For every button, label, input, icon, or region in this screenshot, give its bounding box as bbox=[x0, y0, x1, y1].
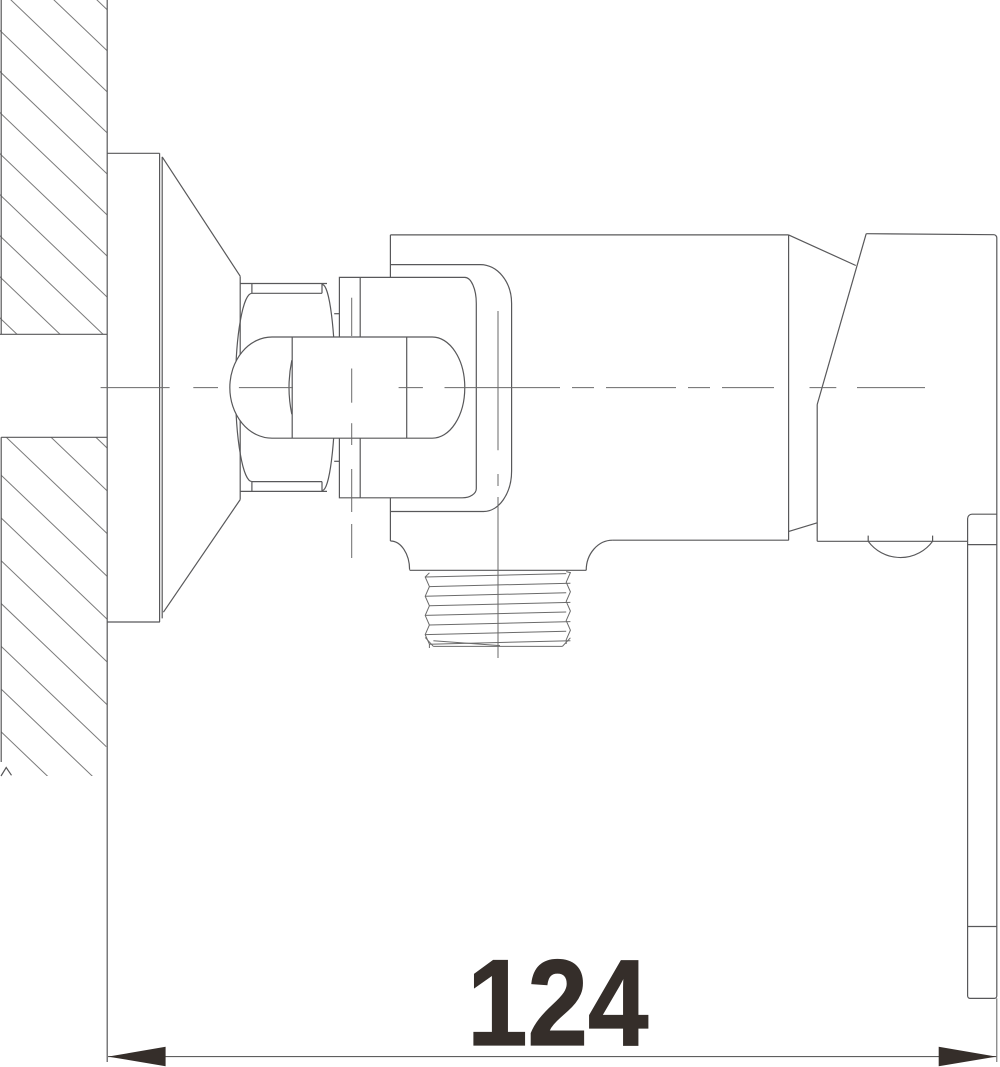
svg-text:124: 124 bbox=[467, 934, 648, 1067]
